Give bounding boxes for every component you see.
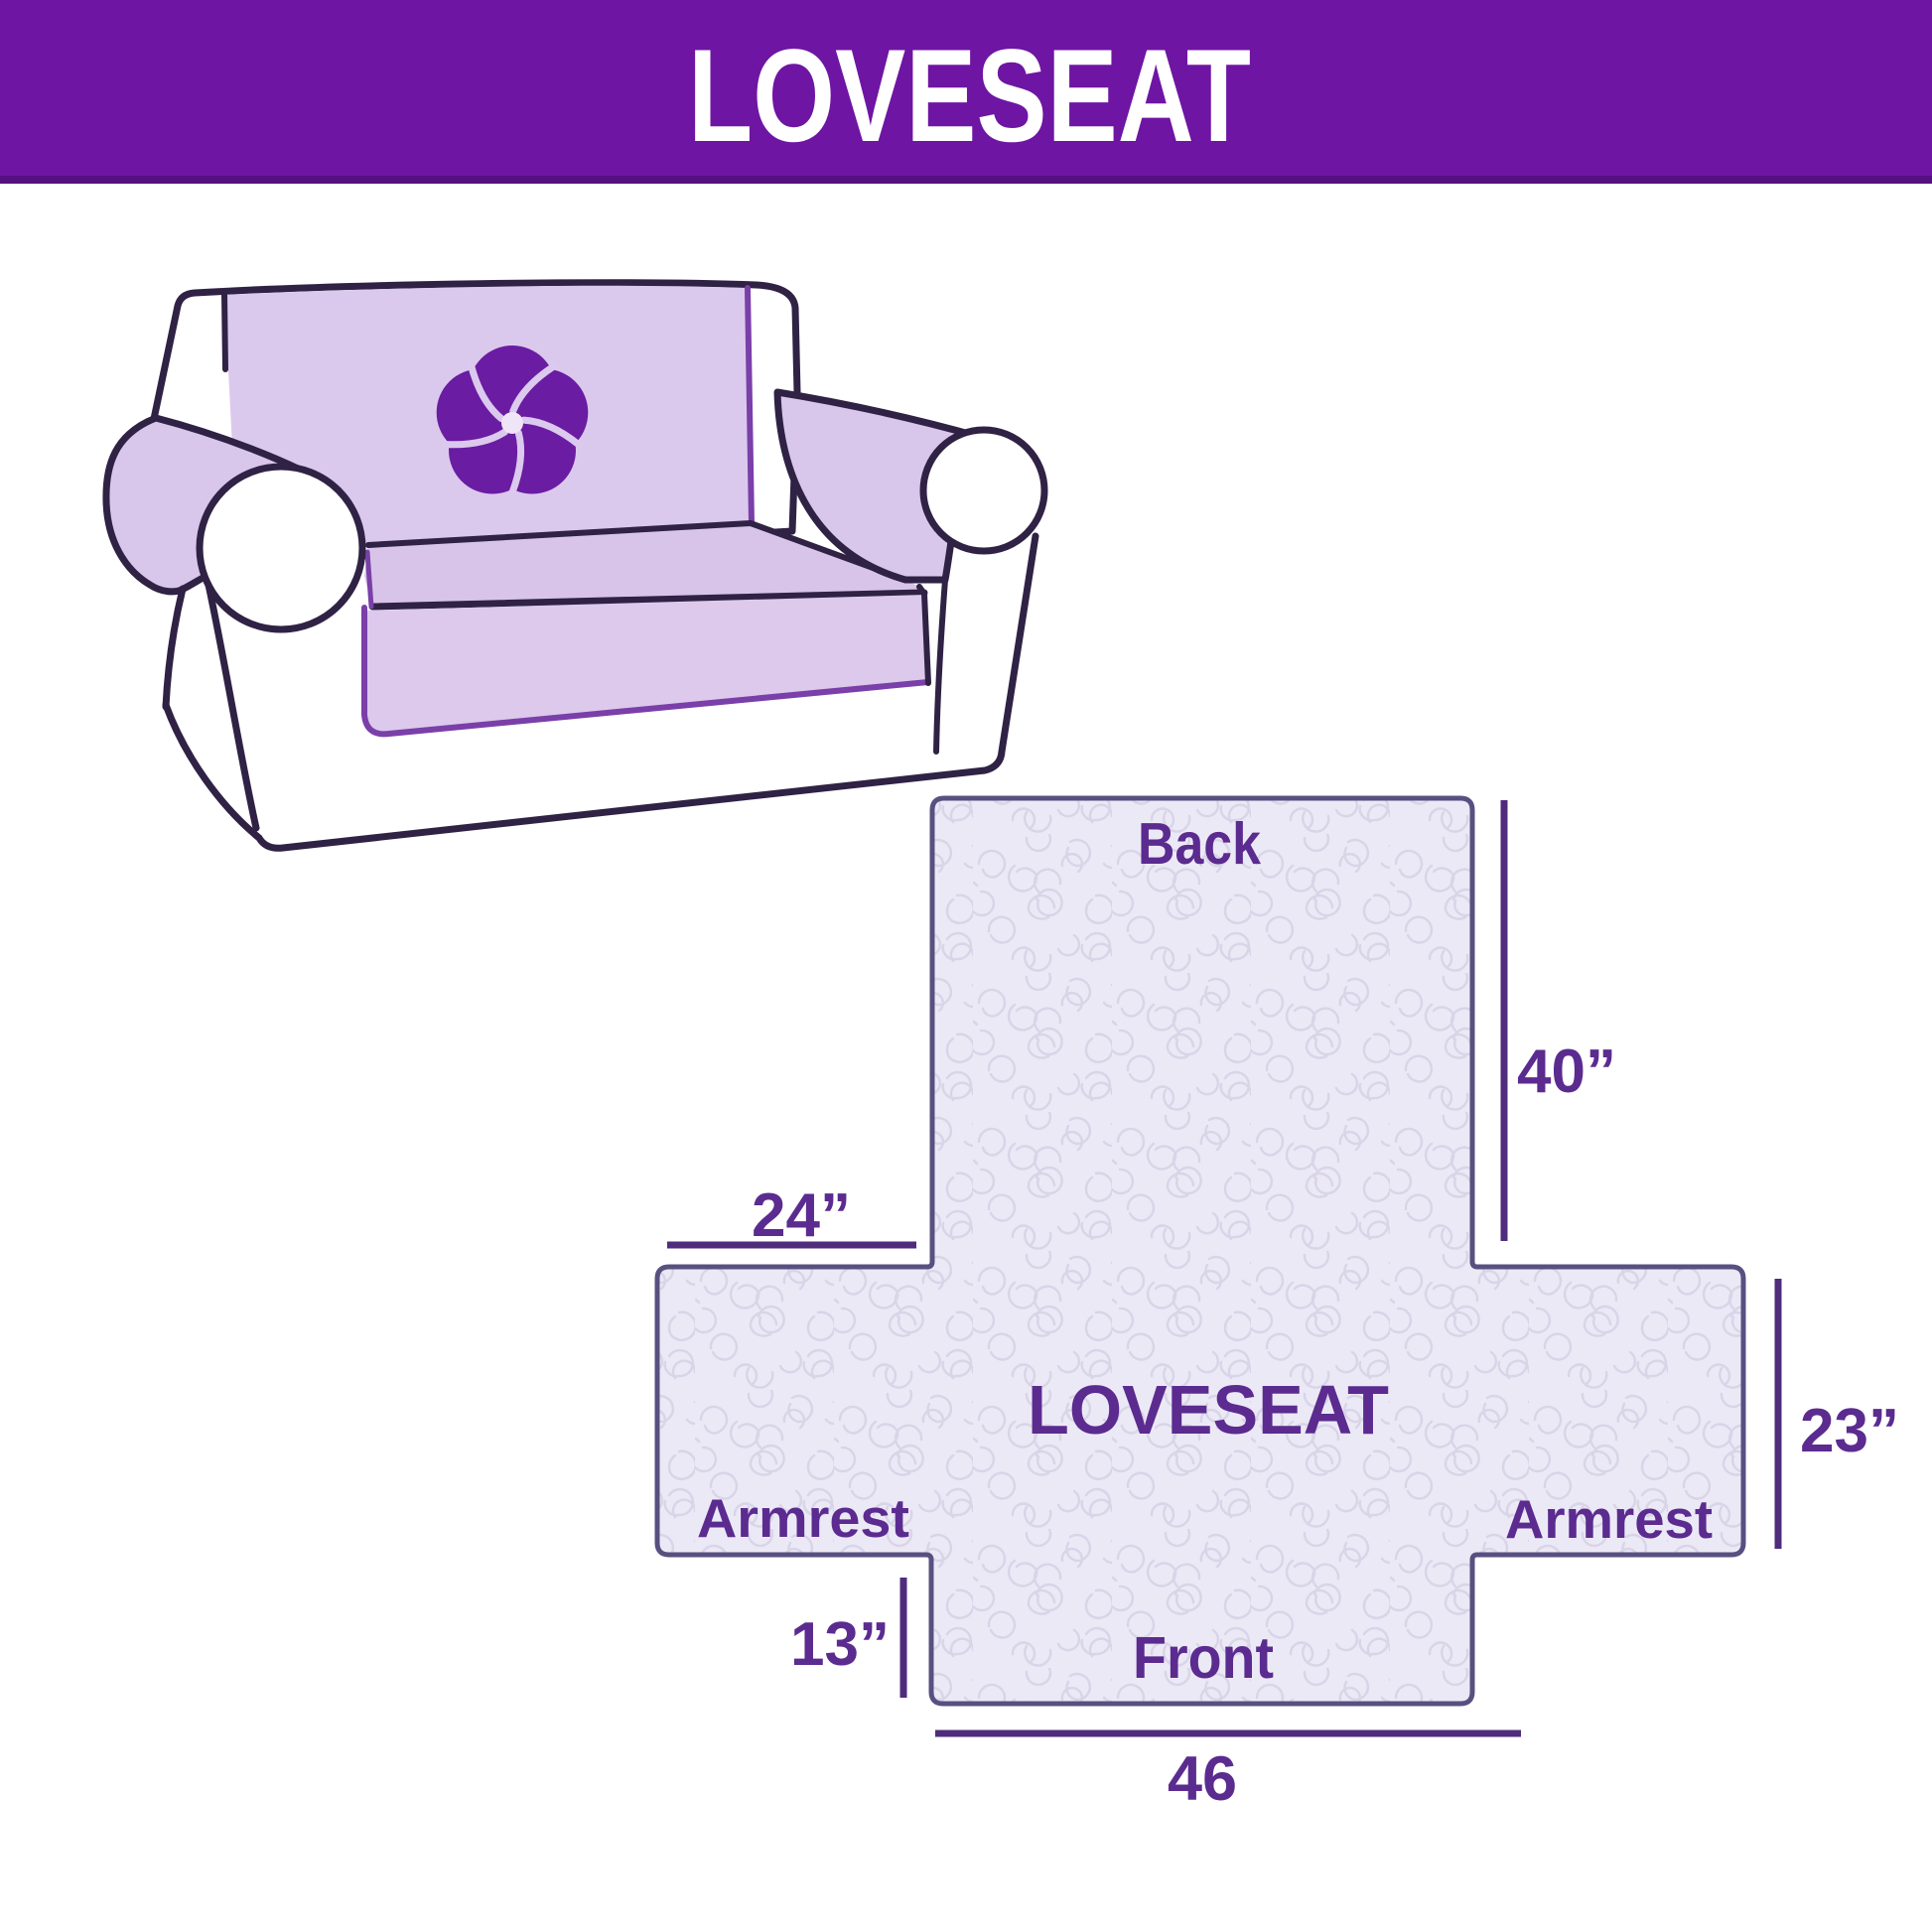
svg-text:LOVESEAT: LOVESEAT: [688, 23, 1251, 170]
svg-text:Back: Back: [1138, 811, 1261, 877]
svg-text:23”: 23”: [1800, 1397, 1899, 1465]
svg-text:40”: 40”: [1517, 1037, 1616, 1106]
svg-text:LOVESEAT: LOVESEAT: [1028, 1371, 1389, 1449]
svg-text:24”: 24”: [752, 1181, 851, 1250]
svg-text:Armrest: Armrest: [697, 1487, 909, 1549]
svg-text:Front: Front: [1133, 1625, 1274, 1691]
svg-text:Armrest: Armrest: [1505, 1488, 1713, 1550]
svg-text:46: 46: [1168, 1744, 1237, 1814]
svg-text:13”: 13”: [790, 1610, 890, 1679]
